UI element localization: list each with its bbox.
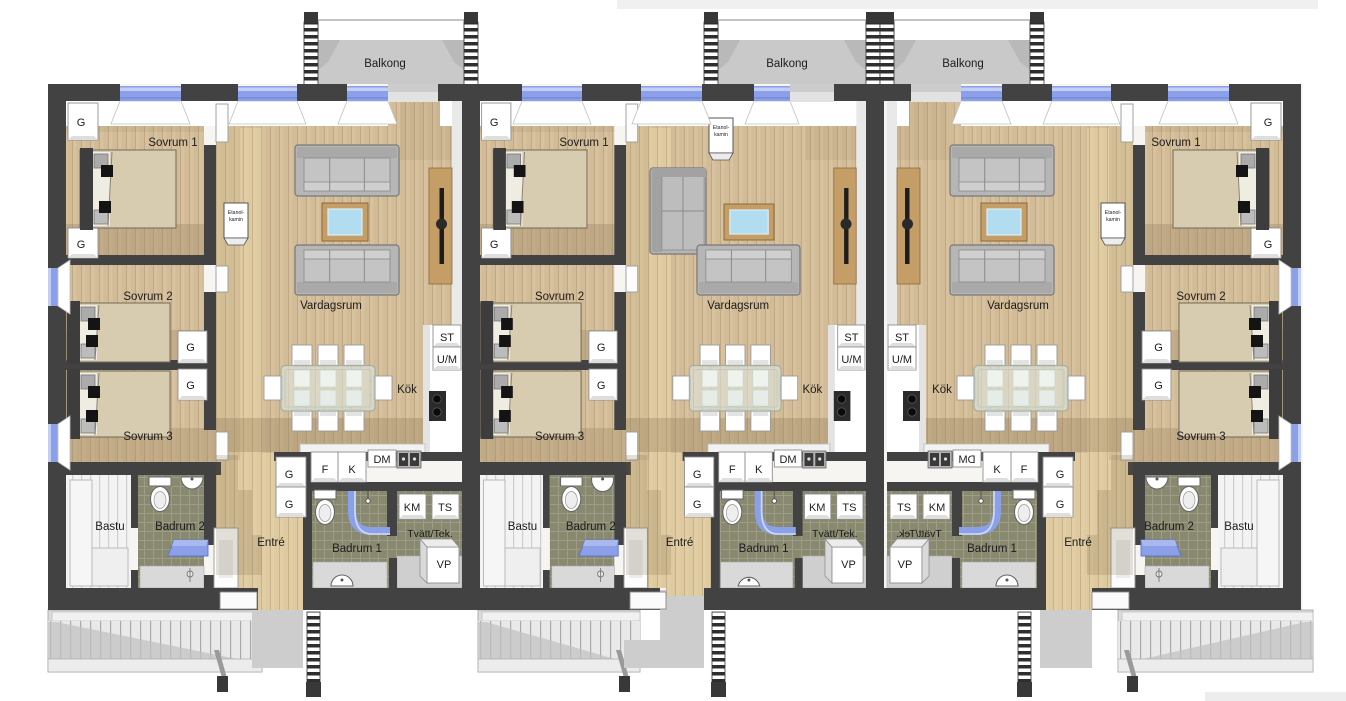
svg-text:G: G [597, 380, 606, 392]
svg-text:G: G [693, 469, 702, 481]
svg-text:Sovrum 2: Sovrum 2 [1176, 291, 1225, 303]
svg-text:Entré: Entré [666, 537, 694, 549]
svg-text:Sovrum 1: Sovrum 1 [148, 137, 197, 149]
svg-text:Sovrum 3: Sovrum 3 [1176, 431, 1225, 443]
svg-text:Entré: Entré [257, 537, 285, 549]
svg-text:DM: DM [779, 454, 796, 466]
svg-text:U/M: U/M [892, 354, 912, 366]
svg-text:KM: KM [929, 502, 946, 514]
svg-text:VP: VP [841, 559, 856, 571]
svg-text:ST: ST [440, 332, 454, 344]
svg-text:Bastu: Bastu [95, 521, 124, 533]
svg-text:Bastu: Bastu [1224, 521, 1253, 533]
svg-text:G: G [1056, 469, 1065, 481]
svg-text:U/M: U/M [841, 354, 861, 366]
svg-text:VP: VP [898, 559, 913, 571]
svg-text:Etanol-: Etanol- [1105, 210, 1122, 216]
svg-text:Vardagsrum: Vardagsrum [987, 300, 1049, 312]
svg-text:TS: TS [897, 502, 911, 514]
svg-text:K: K [755, 464, 763, 476]
svg-text:kamin: kamin [714, 132, 728, 138]
svg-text:F: F [729, 464, 736, 476]
svg-text:ST: ST [895, 332, 909, 344]
svg-text:Badrum 2: Badrum 2 [566, 521, 616, 533]
svg-text:KM: KM [404, 502, 421, 514]
svg-text:G: G [693, 499, 702, 511]
svg-text:G: G [285, 499, 294, 511]
svg-text:G: G [285, 469, 294, 481]
svg-text:Badrum 2: Badrum 2 [155, 521, 205, 533]
svg-text:G: G [597, 342, 606, 354]
svg-text:F: F [1021, 464, 1028, 476]
svg-text:G: G [490, 239, 499, 251]
svg-text:Kök: Kök [932, 384, 952, 396]
svg-text:U/M: U/M [437, 354, 457, 366]
svg-text:kamin: kamin [229, 217, 243, 223]
svg-text:G: G [1264, 117, 1273, 129]
svg-text:Balkong: Balkong [942, 58, 984, 70]
svg-text:kamin: kamin [1106, 217, 1120, 223]
svg-text:G: G [1056, 499, 1065, 511]
svg-text:TS: TS [842, 502, 856, 514]
svg-text:Sovrum 1: Sovrum 1 [559, 137, 608, 149]
svg-text:G: G [490, 117, 499, 129]
svg-text:G: G [186, 342, 195, 354]
svg-text:Kök: Kök [802, 384, 822, 396]
svg-text:Sovrum 3: Sovrum 3 [535, 431, 584, 443]
svg-text:Entré: Entré [1064, 537, 1092, 549]
svg-text:K: K [348, 464, 356, 476]
svg-text:TS: TS [438, 502, 452, 514]
svg-text:Sovrum 1: Sovrum 1 [1151, 137, 1200, 149]
svg-text:Sovrum 2: Sovrum 2 [535, 291, 584, 303]
svg-text:F: F [322, 464, 329, 476]
svg-text:G: G [186, 380, 195, 392]
svg-text:Etanol-: Etanol- [713, 125, 730, 131]
svg-text:Badrum 1: Badrum 1 [739, 543, 789, 555]
svg-text:Bastu: Bastu [508, 521, 537, 533]
svg-text:Balkong: Balkong [766, 58, 808, 70]
svg-text:Tvätt/Tek.: Tvätt/Tek. [896, 528, 942, 540]
svg-text:G: G [77, 117, 86, 129]
svg-text:Vardagsrum: Vardagsrum [707, 300, 769, 312]
svg-text:G: G [1154, 380, 1163, 392]
svg-text:Badrum 1: Badrum 1 [967, 543, 1017, 555]
svg-text:VP: VP [437, 559, 452, 571]
svg-text:K: K [993, 464, 1001, 476]
svg-text:Tvätt/Tek.: Tvätt/Tek. [812, 528, 858, 540]
svg-text:Badrum 1: Badrum 1 [332, 543, 382, 555]
svg-text:G: G [1154, 342, 1163, 354]
svg-text:KM: KM [809, 502, 826, 514]
svg-text:DM: DM [373, 454, 390, 466]
svg-text:ST: ST [844, 332, 858, 344]
svg-text:Tvätt/Tek.: Tvätt/Tek. [407, 528, 453, 540]
svg-text:Sovrum 2: Sovrum 2 [123, 291, 172, 303]
svg-text:Vardagsrum: Vardagsrum [300, 300, 362, 312]
svg-text:G: G [1264, 239, 1273, 251]
svg-text:G: G [77, 239, 86, 251]
svg-text:DM: DM [958, 454, 975, 466]
svg-text:Badrum 2: Badrum 2 [1144, 521, 1194, 533]
svg-text:Kök: Kök [397, 384, 417, 396]
svg-text:Balkong: Balkong [364, 58, 406, 70]
svg-text:Etanol-: Etanol- [228, 210, 245, 216]
svg-text:Sovrum 3: Sovrum 3 [123, 431, 172, 443]
